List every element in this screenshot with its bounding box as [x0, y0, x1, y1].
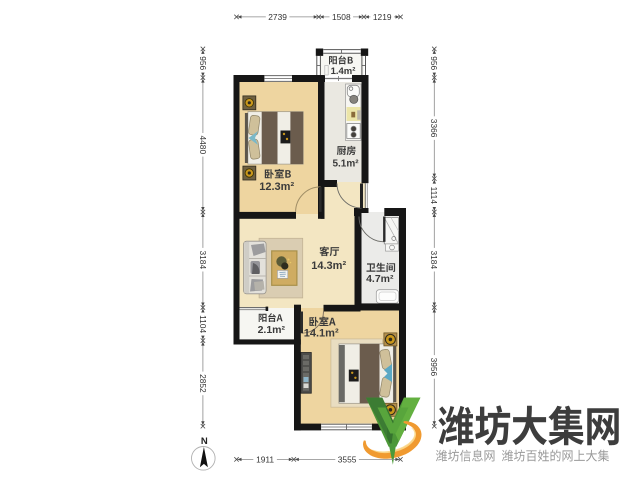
- svg-text:2852: 2852: [198, 374, 208, 393]
- svg-text:1219: 1219: [373, 12, 392, 22]
- svg-text:2739: 2739: [268, 12, 287, 22]
- svg-text:4.7m²: 4.7m²: [366, 273, 394, 285]
- svg-text:3366: 3366: [429, 119, 439, 138]
- svg-text:1.4m²: 1.4m²: [331, 66, 356, 77]
- svg-text:3184: 3184: [198, 250, 208, 269]
- svg-text:1114: 1114: [429, 187, 439, 205]
- svg-text:3184: 3184: [429, 250, 439, 269]
- svg-text:2.1m²: 2.1m²: [258, 324, 286, 336]
- svg-text:14.1m²: 14.1m²: [304, 328, 339, 340]
- svg-text:N: N: [201, 436, 208, 447]
- svg-text:12.3m²: 12.3m²: [259, 181, 294, 193]
- svg-text:4480: 4480: [198, 135, 208, 154]
- svg-text:956: 956: [429, 56, 439, 70]
- svg-text:3555: 3555: [338, 455, 357, 465]
- svg-text:1104: 1104: [198, 315, 208, 333]
- svg-text:3956: 3956: [429, 358, 439, 377]
- svg-text:1508: 1508: [332, 12, 351, 22]
- svg-text:14.3m²: 14.3m²: [311, 260, 346, 272]
- svg-text:956: 956: [198, 56, 208, 70]
- svg-text:5.1m²: 5.1m²: [332, 159, 359, 170]
- svg-text:1911: 1911: [256, 455, 274, 465]
